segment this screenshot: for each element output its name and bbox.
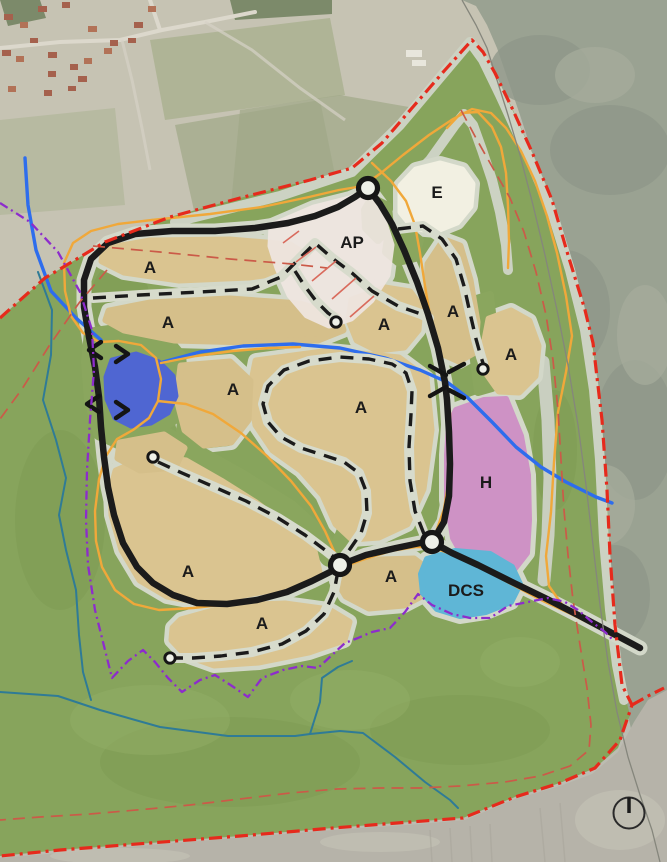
zone-label-a-2: A — [162, 313, 174, 332]
trail-end-icon — [165, 653, 175, 663]
zone-label-a-4: A — [378, 315, 390, 334]
zone-label-a-1: A — [144, 258, 156, 277]
zone-label-e: E — [431, 183, 442, 202]
zone-label-a-5: A — [447, 302, 459, 321]
zone-label-a-10: A — [256, 614, 268, 633]
zone-label-dcs: DCS — [448, 581, 484, 600]
master-plan-screenshot: A A A A A A A A A A E AP H DCS — [0, 0, 667, 862]
zone-label-a-9: A — [385, 567, 397, 586]
zone-label-ap: AP — [340, 233, 364, 252]
zone-label-a-3: A — [227, 380, 239, 399]
zone-label-h: H — [480, 473, 492, 492]
road-node-icon — [331, 556, 350, 575]
master-plan-map: A A A A A A A A A A E AP H DCS — [0, 0, 667, 862]
zone-label-a-7: A — [355, 398, 367, 417]
trail-end-icon — [331, 317, 341, 327]
trail-end-icon — [478, 364, 488, 374]
road-node-icon — [359, 179, 378, 198]
road-node-icon — [423, 533, 442, 552]
trail-end-icon — [148, 452, 158, 462]
zone-label-a-8: A — [182, 562, 194, 581]
zone-label-a-6: A — [505, 345, 517, 364]
